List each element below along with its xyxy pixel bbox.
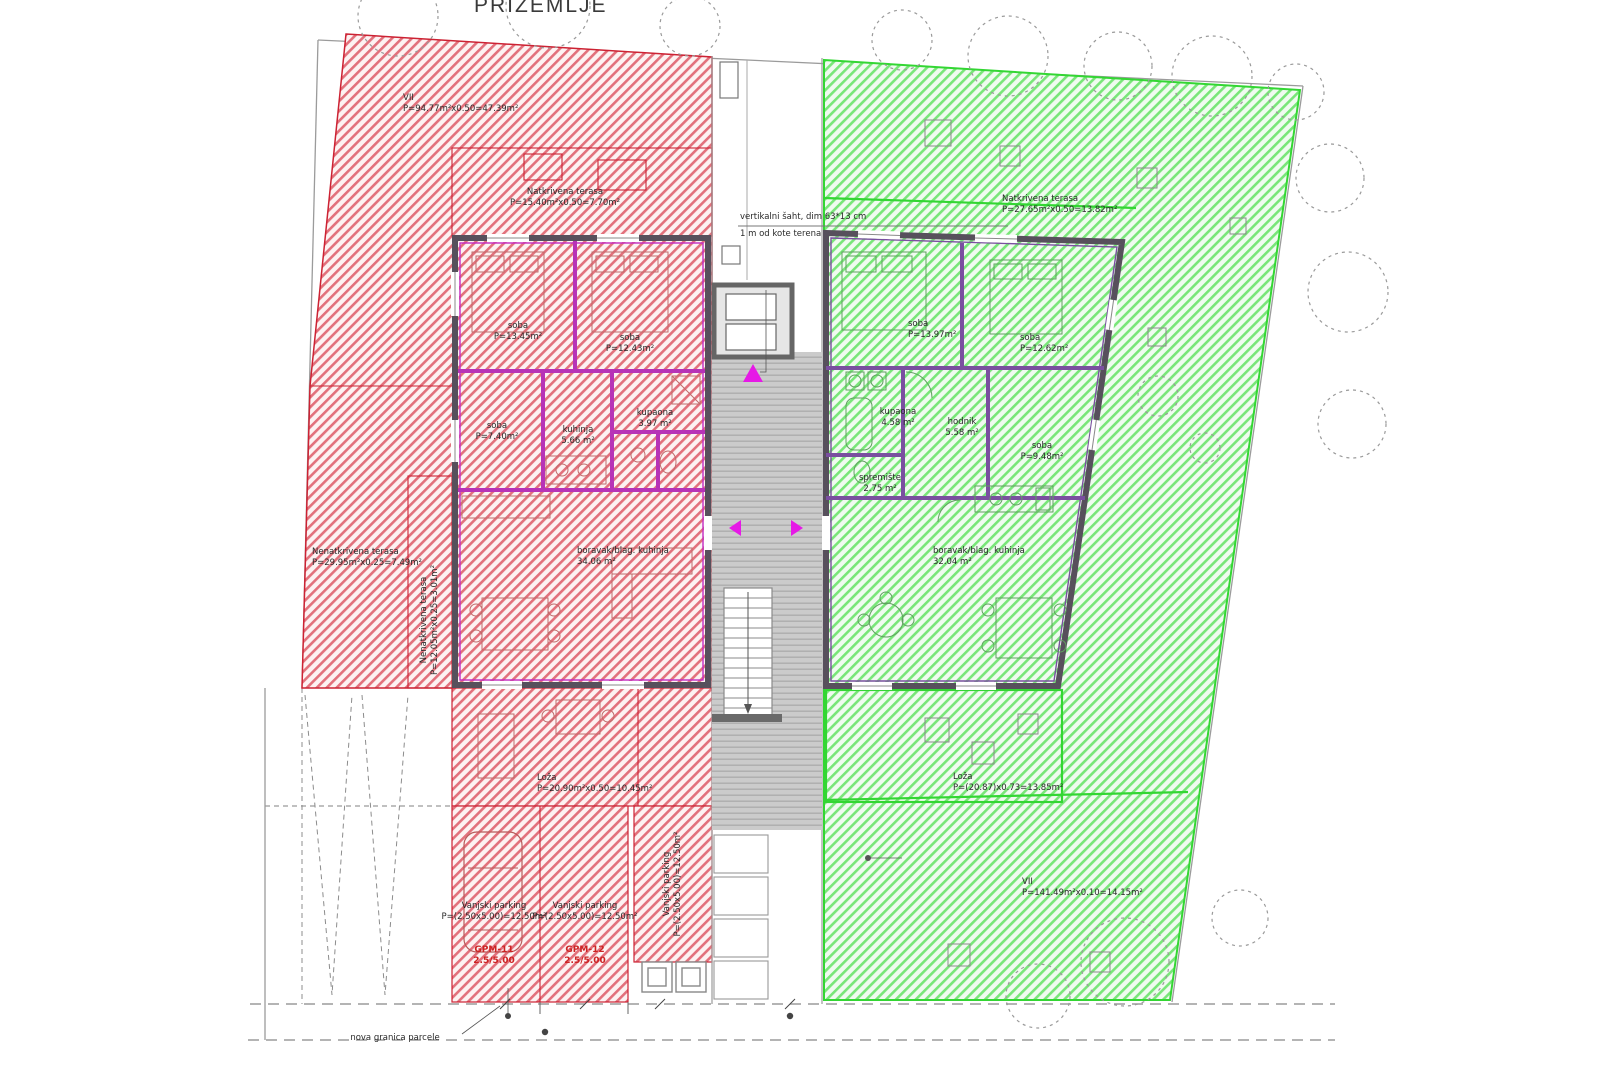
- green-room0-name: soba: [908, 319, 928, 329]
- storage-boxes: [714, 835, 768, 999]
- green-room3-name: hodnik: [948, 417, 977, 427]
- parking1-size: 2.5/5.00: [564, 956, 605, 966]
- landing-wall: [712, 714, 782, 722]
- floor-plan-canvas: PRIZEMLJE vertikalni šaht, dim 63*13 cm …: [0, 0, 1600, 1067]
- green-room5-name: spremište: [859, 472, 901, 483]
- elevator: [714, 285, 792, 357]
- shaft-note-line1: vertikalni šaht, dim 63*13 cm: [740, 211, 866, 222]
- green-room2-name: kupaona: [880, 407, 916, 417]
- red-room2-area: P=7.40m²: [476, 432, 519, 442]
- red-room4-area: 3.97 m²: [638, 419, 671, 429]
- parking1-calc: P=(2.50x5.00)=12.50m²: [533, 912, 638, 922]
- green-loggia-area: P=(20.87)x0.73=13.85m²: [953, 783, 1063, 793]
- parking0-code: GPM-11: [474, 945, 513, 955]
- green-room6-area: 32.04 m²: [933, 557, 972, 567]
- parking0-calc: P=(2.50x5.00)=12.50m²: [442, 912, 547, 922]
- red-room1-area: P=12.43m²: [606, 344, 654, 354]
- red-uncovered-terrace-name: Nenatkrivena terasa: [312, 547, 399, 557]
- parking0-size: 2.5/5.00: [473, 956, 514, 966]
- red-room3-name: kuhinja: [563, 425, 594, 435]
- red-room1-name: soba: [620, 333, 640, 343]
- green-room6-name: boravak/blag. kuhinja: [933, 546, 1025, 556]
- red-room5-name: boravak/blag. kuhinja: [577, 546, 669, 556]
- red-loggia-area: P=20.90m²x0.50=10.45m²: [537, 784, 652, 794]
- green-garden-area: P=141.49m²x0.10=14.15m²: [1022, 888, 1143, 898]
- red-uncovered-terrace-area: P=29.95m²x0.25=7.49m²: [312, 558, 422, 568]
- parking0-name: Vanjski parking: [462, 901, 527, 911]
- shaft-note-line2: 1 m od kote terena: [740, 229, 821, 239]
- vent-shaft-box: [722, 246, 740, 264]
- vent-shaft-top: [720, 62, 738, 98]
- green-room3-area: 5.58 m²: [945, 428, 978, 438]
- floor-plan-page: PRIZEMLJE vertikalni šaht, dim 63*13 cm …: [0, 0, 1600, 1067]
- parcel-note-leader: [462, 1006, 500, 1034]
- shaft-boxes-bottom: [642, 962, 706, 992]
- parcel-note: nova granica parcele: [350, 1033, 439, 1043]
- red-side-terrace-area: P=12.05m²x0.25=3.01m²: [430, 565, 440, 675]
- red-room2-name: soba: [487, 421, 507, 431]
- red-room3-area: 5.66 m²: [561, 436, 594, 446]
- red-room4-name: kupaona: [637, 408, 673, 418]
- red-loggia-name: Loža: [537, 773, 556, 783]
- green-room4-name: soba: [1032, 441, 1052, 451]
- parking1-code: GPM-12: [565, 945, 604, 955]
- green-room1-name: soba: [1020, 333, 1040, 343]
- red-room0-name: soba: [508, 321, 528, 331]
- green-covered-terrace-area: P=27.65m²x0.50=13.82m²: [1002, 205, 1117, 215]
- red-site-name: VII: [403, 93, 414, 103]
- green-room0-area: P=13.97m²: [908, 330, 956, 340]
- red-site-area: P=94.77m²x0.50=47.39m²: [403, 104, 518, 114]
- green-room1-area: P=12.62m²: [1020, 344, 1068, 354]
- green-room2-area: 4.58 m²: [881, 418, 914, 428]
- green-loggia-name: Loža: [953, 772, 972, 782]
- parking2-calc: P=(2.50x5.00)=12.50m²: [673, 832, 683, 937]
- red-covered-terrace-name: Natkrivena terasa: [527, 187, 603, 197]
- parking2-name: Vanjski parking: [662, 852, 672, 917]
- green-covered-terrace-name: Natkrivena terasa: [1002, 194, 1078, 204]
- red-covered-terrace-area: P=15.40m²x0.50=7.70m²: [510, 198, 620, 208]
- red-room5-area: 34.06 m²: [577, 557, 616, 567]
- green-room4-area: P=9.48m²: [1021, 452, 1064, 462]
- green-garden-name: VII: [1022, 877, 1033, 887]
- driveway-markings: [302, 688, 408, 1004]
- parking1-name: Vanjski parking: [553, 901, 618, 911]
- staircase: [724, 588, 772, 716]
- red-side-terrace-name: Nenatkrivena terasa: [419, 577, 429, 664]
- red-room0-area: P=13.45m²: [494, 332, 542, 342]
- green-room5-area: 2.75 m²: [863, 484, 896, 494]
- page-title: PRIZEMLJE: [474, 0, 608, 17]
